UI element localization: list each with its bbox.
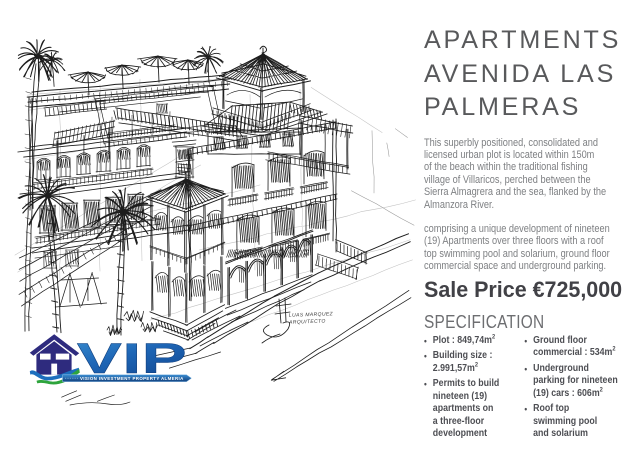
svg-text:VISION INVESTMENT PROPERTY ALM: VISION INVESTMENT PROPERTY ALMERIA	[80, 376, 184, 381]
